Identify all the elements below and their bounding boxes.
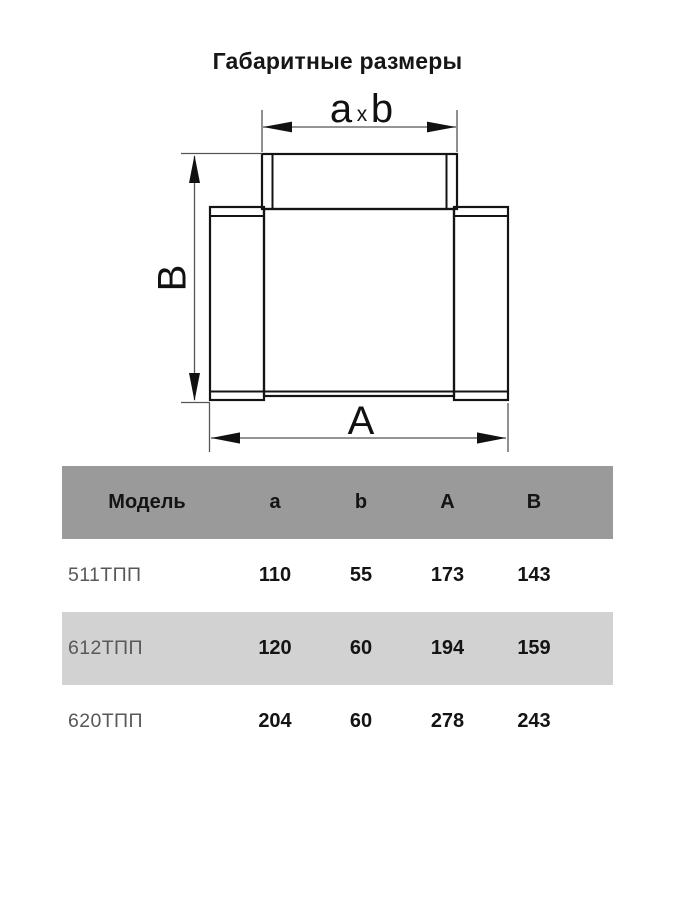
page: Габаритные размеры a x [0, 0, 675, 900]
right-spigot [454, 207, 508, 400]
tee-fitting [210, 154, 508, 400]
value-b: 60 [318, 637, 404, 660]
dimension-axb: a x b [262, 87, 457, 152]
value-B: 243 [491, 710, 577, 733]
col-header-model: Модель [62, 491, 232, 514]
arrowhead-left [263, 122, 292, 133]
left-spigot [210, 207, 264, 400]
arrowhead-up [189, 155, 200, 183]
value-b: 55 [318, 564, 404, 587]
arrowhead-down [189, 373, 200, 401]
col-header-a: a [232, 491, 318, 514]
col-header-B: B [491, 491, 577, 514]
table-row: 620ТПП 204 60 278 243 [62, 685, 613, 758]
dimension-A: A [210, 399, 509, 452]
dimension-label-b: b [371, 87, 393, 131]
dimension-label-a: a [330, 87, 353, 131]
body [264, 209, 454, 396]
arrowhead-right [477, 432, 506, 443]
dimension-label-A: A [348, 399, 375, 443]
table-row: 511ТПП 110 55 173 143 [62, 539, 613, 612]
dimension-label-x: x [357, 103, 368, 126]
col-header-b: b [318, 491, 404, 514]
tee-fitting-drawing: a x b B A [0, 0, 675, 462]
value-A: 194 [404, 637, 491, 660]
value-a: 204 [232, 710, 318, 733]
dimension-label-B: B [151, 265, 195, 292]
col-header-A: A [404, 491, 491, 514]
value-A: 173 [404, 564, 491, 587]
dimensions-table: Модель a b A B 511ТПП 110 55 173 143 612… [62, 466, 613, 758]
model-name: 620ТПП [62, 710, 232, 733]
value-B: 159 [491, 637, 577, 660]
value-a: 120 [232, 637, 318, 660]
top-spigot [262, 154, 457, 209]
model-name: 612ТПП [62, 637, 232, 660]
dimension-B: B [151, 154, 262, 403]
table-header-row: Модель a b A B [62, 466, 613, 539]
table-row: 612ТПП 120 60 194 159 [62, 612, 613, 685]
arrowhead-left [211, 432, 240, 443]
model-name: 511ТПП [62, 564, 232, 587]
arrowhead-right [427, 122, 456, 133]
value-A: 278 [404, 710, 491, 733]
value-B: 143 [491, 564, 577, 587]
value-b: 60 [318, 710, 404, 733]
value-a: 110 [232, 564, 318, 587]
